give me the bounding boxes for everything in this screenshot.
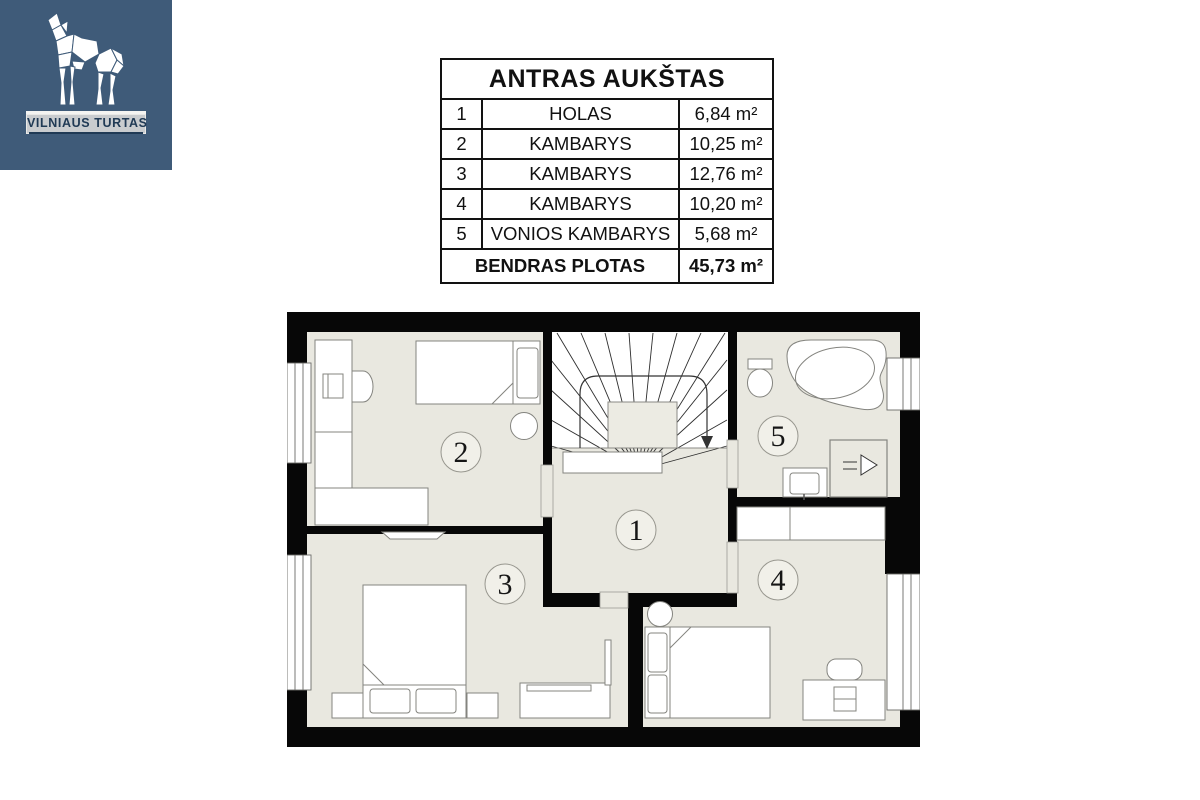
cabinet — [315, 432, 352, 488]
table-row-4: 4 KAMBARYS 10,20 m² — [441, 189, 773, 219]
wardrobe — [737, 507, 790, 540]
room-name-cell: HOLAS — [482, 99, 679, 129]
room-name-cell: KAMBARYS — [482, 189, 679, 219]
room-label: 3 — [498, 568, 513, 601]
wardrobe — [790, 507, 885, 540]
nightstand — [332, 693, 363, 718]
room-number-cell: 1 — [441, 99, 482, 129]
hall-shelf — [563, 452, 662, 473]
table-row-1: 1 HOLAS 6,84 m² — [441, 99, 773, 129]
room-label: 5 — [771, 420, 786, 453]
toilet-tank — [748, 359, 772, 369]
room-area-cell: 12,76 m² — [679, 159, 773, 189]
brand-underline — [29, 132, 143, 134]
room-label: 2 — [454, 436, 469, 469]
table-row-5: 5 VONIOS KAMBARYS 5,68 m² — [441, 219, 773, 249]
window-room2 — [287, 363, 311, 463]
area-table: ANTRAS AUKŠTAS 1 HOLAS 6,84 m² 2 KAMBARY… — [440, 58, 774, 284]
stair-landing — [608, 402, 677, 448]
brand-name: VILNIAUS TURTAS — [27, 115, 145, 132]
wall-tv-icon — [382, 532, 445, 539]
table-row-3: 3 KAMBARYS 12,76 m² — [441, 159, 773, 189]
brand-logo-block: VILNIAUS TURTAS — [0, 0, 172, 170]
table-row-2: 2 KAMBARYS 10,25 m² — [441, 129, 773, 159]
room-area-cell: 10,25 m² — [679, 129, 773, 159]
table-title-row: ANTRAS AUKŠTAS — [441, 59, 773, 99]
pillow — [370, 689, 410, 713]
pillow — [648, 633, 667, 672]
room-label: 1 — [629, 514, 644, 547]
room-name-cell: VONIOS KAMBARYS — [482, 219, 679, 249]
window-room4 — [887, 574, 920, 710]
window-room3 — [287, 555, 311, 690]
floorplan: 1 2 3 4 5 — [287, 312, 920, 747]
room-area-cell: 6,84 m² — [679, 99, 773, 129]
wolf-logo-icon — [24, 12, 148, 112]
door-opening-room3 — [600, 592, 628, 608]
office-chair — [827, 659, 862, 680]
door-opening-room2 — [541, 465, 553, 517]
page: VILNIAUS TURTAS ANTRAS AUKŠTAS 1 HOLAS 6… — [0, 0, 1200, 800]
table-title: ANTRAS AUKŠTAS — [441, 59, 773, 99]
total-label: BENDRAS PLOTAS — [441, 249, 679, 283]
window-bathroom — [887, 358, 920, 410]
room-name-cell: KAMBARYS — [482, 159, 679, 189]
toilet — [748, 369, 773, 397]
monitor-icon — [323, 374, 343, 398]
stool — [511, 413, 538, 440]
room-area-cell: 10,20 m² — [679, 189, 773, 219]
office-chair — [352, 371, 373, 402]
sideboard-shelf — [527, 685, 591, 691]
pillow — [517, 348, 538, 398]
pillow — [648, 675, 667, 713]
table-total-row: BENDRAS PLOTAS 45,73 m² — [441, 249, 773, 283]
brand-name-bar: VILNIAUS TURTAS — [26, 114, 146, 134]
room-label: 4 — [771, 564, 786, 597]
pillow — [416, 689, 456, 713]
room-name-cell: KAMBARYS — [482, 129, 679, 159]
stool — [648, 602, 673, 627]
room-number-cell: 2 — [441, 129, 482, 159]
room-number-cell: 4 — [441, 189, 482, 219]
dresser — [315, 488, 428, 525]
tall-shelf — [605, 640, 611, 685]
room-number-cell: 5 — [441, 219, 482, 249]
room-area-cell: 5,68 m² — [679, 219, 773, 249]
total-area: 45,73 m² — [679, 249, 773, 283]
opening-room4 — [727, 542, 738, 593]
room-number-cell: 3 — [441, 159, 482, 189]
nightstand — [467, 693, 498, 718]
door-opening-bathroom — [727, 440, 738, 488]
